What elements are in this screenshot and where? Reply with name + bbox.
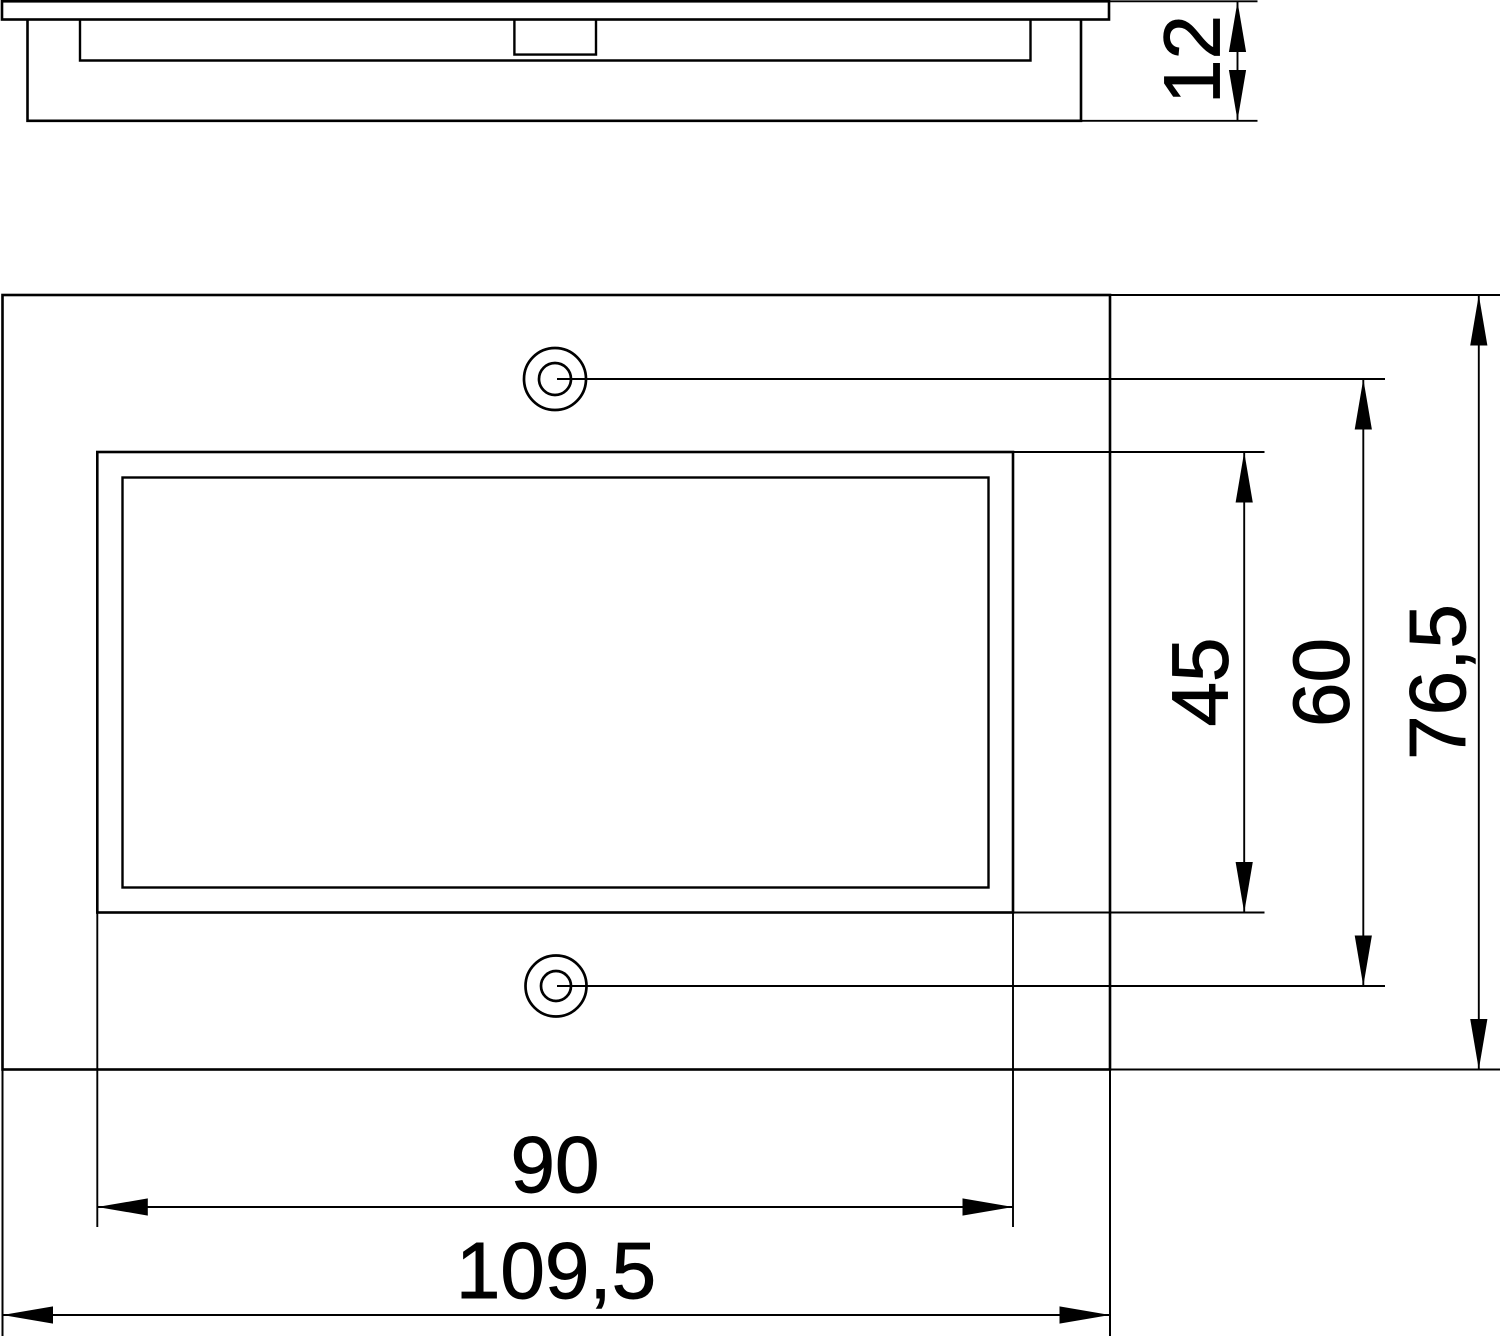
svg-text:60: 60 [1277, 638, 1366, 727]
svg-text:90: 90 [511, 1120, 600, 1209]
svg-text:12: 12 [1148, 15, 1237, 104]
svg-text:45: 45 [1156, 638, 1245, 727]
svg-text:76,5: 76,5 [1393, 604, 1482, 760]
svg-text:109,5: 109,5 [456, 1226, 656, 1315]
